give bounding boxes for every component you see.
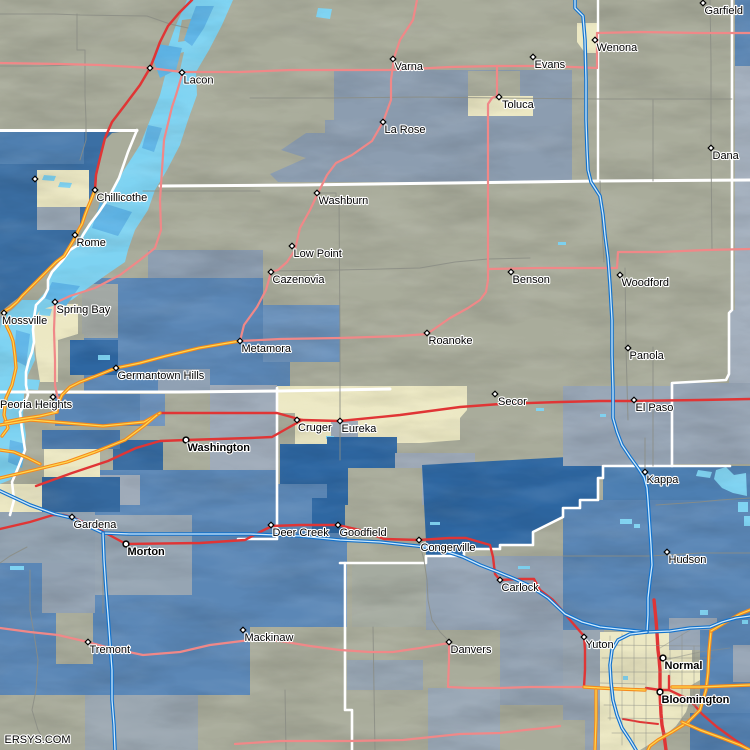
svg-text:Morton: Morton — [128, 546, 166, 558]
svg-text:Secor: Secor — [498, 396, 527, 408]
svg-text:Varna: Varna — [395, 61, 424, 73]
svg-text:Kappa: Kappa — [647, 474, 680, 486]
svg-text:Dana: Dana — [713, 150, 740, 162]
svg-text:Cazenovia: Cazenovia — [273, 274, 326, 286]
svg-text:Mossville: Mossville — [2, 315, 47, 327]
svg-text:Evans: Evans — [535, 59, 566, 71]
svg-text:La Rose: La Rose — [385, 124, 426, 136]
svg-text:Spring Bay: Spring Bay — [57, 304, 111, 316]
svg-text:Wenona: Wenona — [597, 42, 639, 54]
svg-text:Metamora: Metamora — [242, 343, 292, 355]
svg-text:Peoria Heights: Peoria Heights — [0, 399, 73, 411]
svg-text:Yuton: Yuton — [586, 639, 614, 651]
svg-text:Germantown Hills: Germantown Hills — [118, 370, 205, 382]
svg-text:Low Point: Low Point — [294, 248, 342, 260]
svg-text:Toluca: Toluca — [502, 99, 535, 111]
svg-text:Roanoke: Roanoke — [429, 335, 473, 347]
svg-text:Tremont: Tremont — [90, 644, 131, 656]
svg-text:Bloomington: Bloomington — [662, 694, 730, 706]
svg-text:Benson: Benson — [513, 274, 550, 286]
svg-text:Gardena: Gardena — [74, 519, 118, 531]
svg-text:Chillicothe: Chillicothe — [97, 192, 148, 204]
svg-text:Lacon: Lacon — [184, 75, 214, 87]
svg-text:Cruger: Cruger — [298, 422, 332, 434]
svg-text:Garfield: Garfield — [705, 5, 744, 17]
svg-text:El Paso: El Paso — [636, 402, 674, 414]
svg-text:Eureka: Eureka — [342, 423, 378, 435]
svg-text:Woodford: Woodford — [622, 277, 670, 289]
svg-text:Congerville: Congerville — [421, 542, 476, 554]
svg-text:Goodfield: Goodfield — [340, 527, 387, 539]
svg-text:Washburn: Washburn — [319, 195, 369, 207]
svg-text:Danvers: Danvers — [451, 644, 492, 656]
svg-text:Washington: Washington — [188, 442, 251, 454]
svg-text:Hudson: Hudson — [669, 554, 707, 566]
svg-text:Mackinaw: Mackinaw — [245, 632, 294, 644]
svg-text:Rome: Rome — [77, 237, 106, 249]
svg-text:Panola: Panola — [630, 350, 665, 362]
svg-text:Carlock: Carlock — [502, 582, 540, 594]
svg-text:Deer Creek: Deer Creek — [273, 527, 330, 539]
svg-text:ERSYS.COM: ERSYS.COM — [5, 734, 71, 746]
svg-text:Normal: Normal — [665, 660, 703, 672]
